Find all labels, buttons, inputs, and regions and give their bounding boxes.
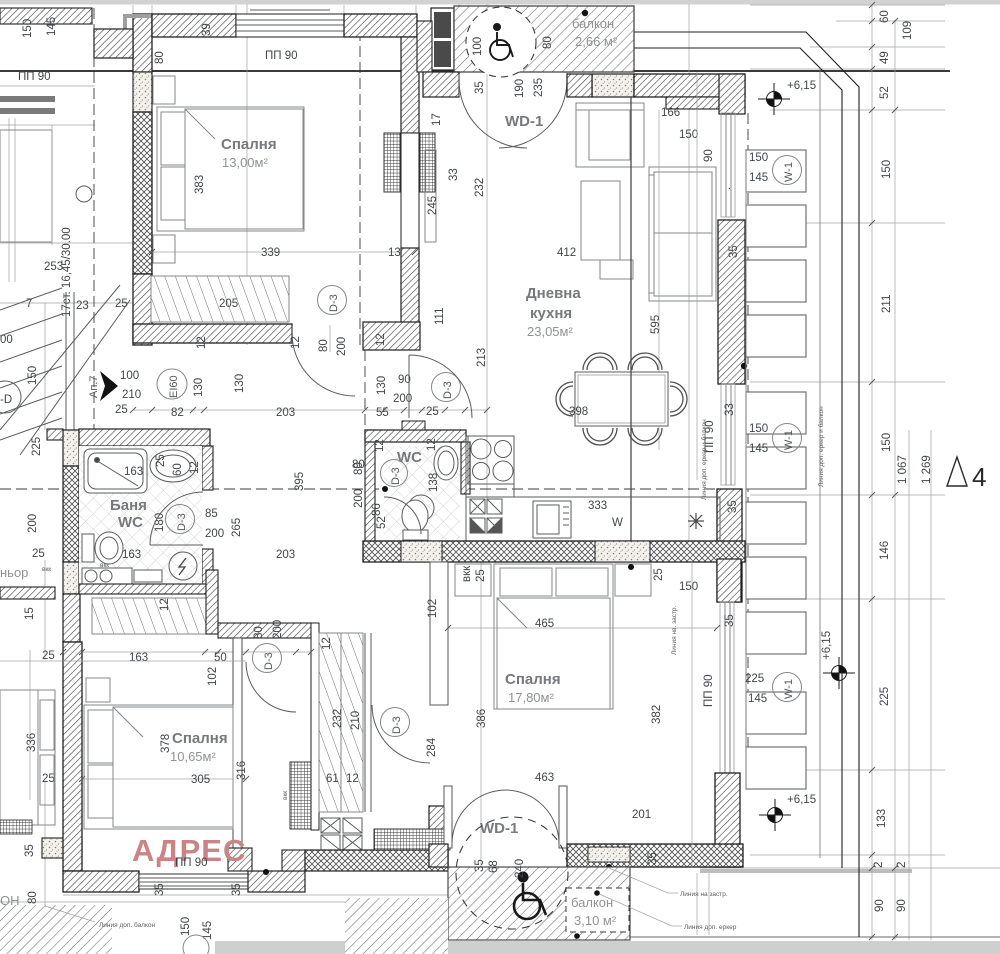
svg-text:200: 200 xyxy=(27,514,39,533)
svg-text:вкк: вкк xyxy=(461,565,473,582)
svg-text:D-3: D-3 xyxy=(390,467,402,485)
svg-text:25: 25 xyxy=(653,568,665,581)
svg-text:133: 133 xyxy=(876,809,888,828)
svg-text:Спалня: Спалня xyxy=(172,730,228,747)
svg-text:265: 265 xyxy=(231,518,243,537)
svg-text:W-1: W-1 xyxy=(783,162,795,182)
svg-text:13: 13 xyxy=(388,247,401,259)
svg-text:4: 4 xyxy=(972,462,986,492)
svg-text:17ст. 16,45/30.00: 17ст. 16,45/30.00 xyxy=(61,227,73,317)
svg-text:12: 12 xyxy=(426,438,438,451)
svg-text:2: 2 xyxy=(873,862,885,868)
svg-text:WD-1: WD-1 xyxy=(480,820,518,837)
svg-text:D-3: D-3 xyxy=(391,716,403,734)
svg-text:12: 12 xyxy=(196,336,208,349)
svg-text:35: 35 xyxy=(728,245,740,258)
svg-text:145: 145 xyxy=(748,693,767,705)
svg-text:Спалня: Спалня xyxy=(505,671,561,688)
svg-text:52: 52 xyxy=(376,516,388,529)
svg-text:150: 150 xyxy=(881,433,893,452)
svg-text:100: 100 xyxy=(120,370,139,382)
svg-text:25: 25 xyxy=(115,298,128,310)
svg-text:200: 200 xyxy=(272,620,284,639)
svg-text:7: 7 xyxy=(26,298,32,310)
svg-text:336: 336 xyxy=(26,733,38,752)
svg-text:200: 200 xyxy=(353,489,365,508)
svg-text:17: 17 xyxy=(431,113,443,126)
svg-text:12: 12 xyxy=(159,598,171,611)
svg-text:12: 12 xyxy=(189,461,201,474)
svg-text:150: 150 xyxy=(679,581,698,593)
svg-text:35: 35 xyxy=(231,883,243,896)
svg-text:WC: WC xyxy=(118,514,143,531)
svg-text:Линия нв. застр.: Линия нв. застр. xyxy=(671,605,678,655)
svg-text:145: 145 xyxy=(46,17,58,36)
svg-text:210: 210 xyxy=(350,711,362,730)
svg-text:00: 00 xyxy=(0,334,13,346)
svg-text:398: 398 xyxy=(569,406,588,418)
svg-text:150: 150 xyxy=(180,917,192,936)
svg-text:49: 49 xyxy=(879,51,891,64)
svg-text:35: 35 xyxy=(724,614,736,627)
svg-text:W-1: W-1 xyxy=(783,679,795,699)
svg-text:130: 130 xyxy=(234,374,246,393)
svg-text:12: 12 xyxy=(346,773,359,785)
svg-text:WC: WC xyxy=(397,449,422,466)
svg-text:35: 35 xyxy=(24,844,36,857)
svg-text:35: 35 xyxy=(474,81,486,94)
svg-text:146: 146 xyxy=(879,541,891,560)
svg-text:205: 205 xyxy=(219,298,238,310)
svg-text:386: 386 xyxy=(476,709,488,728)
svg-text:378: 378 xyxy=(160,734,172,753)
svg-text:102: 102 xyxy=(427,599,439,618)
svg-text:595: 595 xyxy=(650,315,662,334)
svg-text:412: 412 xyxy=(557,247,576,259)
svg-text:25: 25 xyxy=(426,406,439,418)
svg-text:213: 213 xyxy=(476,348,488,367)
svg-text:25: 25 xyxy=(475,569,487,582)
svg-text:25: 25 xyxy=(42,773,55,785)
svg-text:60: 60 xyxy=(172,463,184,476)
svg-text:130: 130 xyxy=(376,376,388,395)
svg-text:150: 150 xyxy=(679,129,698,141)
svg-text:12: 12 xyxy=(290,336,302,349)
svg-text:111: 111 xyxy=(434,308,446,325)
svg-text:12: 12 xyxy=(321,637,333,650)
svg-text:60: 60 xyxy=(879,10,891,23)
svg-text:305: 305 xyxy=(191,774,210,786)
svg-text:145: 145 xyxy=(749,443,768,455)
svg-text:Линия доп. еркер: Линия доп. еркер xyxy=(684,924,737,931)
svg-text:1 269: 1 269 xyxy=(921,455,933,484)
svg-text:150: 150 xyxy=(27,366,39,385)
svg-text:15: 15 xyxy=(24,607,36,620)
svg-text:463: 463 xyxy=(535,772,554,784)
svg-text:35: 35 xyxy=(474,859,486,872)
svg-text:82: 82 xyxy=(171,407,184,419)
svg-text:80: 80 xyxy=(253,626,265,639)
svg-text:25: 25 xyxy=(42,650,55,662)
svg-text:WD-1: WD-1 xyxy=(505,113,543,130)
svg-text:Линия на застр.: Линия на застр. xyxy=(680,891,728,898)
svg-text:23,05м²: 23,05м² xyxy=(527,324,573,339)
svg-text:80: 80 xyxy=(352,459,365,471)
svg-text:85: 85 xyxy=(205,508,218,520)
svg-text:150: 150 xyxy=(22,19,34,38)
svg-text:166: 166 xyxy=(661,107,680,119)
svg-text:163: 163 xyxy=(129,652,148,664)
svg-text:W-1: W-1 xyxy=(783,430,795,450)
svg-text:+6,15: +6,15 xyxy=(787,80,816,92)
svg-text:Баня: Баня xyxy=(110,497,147,514)
svg-text:225: 225 xyxy=(31,437,43,456)
svg-text:90: 90 xyxy=(703,149,715,162)
svg-text:339: 339 xyxy=(261,247,280,259)
svg-text:25: 25 xyxy=(32,548,45,560)
svg-text:203: 203 xyxy=(276,407,295,419)
svg-text:вкк: вкк xyxy=(282,791,289,800)
svg-text:25: 25 xyxy=(115,404,128,416)
svg-text:333: 333 xyxy=(588,500,607,512)
svg-text:383: 383 xyxy=(194,175,206,194)
svg-text:232: 232 xyxy=(332,709,344,728)
svg-text:240: 240 xyxy=(514,859,526,878)
svg-text:80: 80 xyxy=(542,36,554,49)
svg-text:10,65м²: 10,65м² xyxy=(170,749,216,764)
svg-text:163: 163 xyxy=(122,549,141,561)
svg-text:D-3: D-3 xyxy=(176,513,188,531)
svg-text:100: 100 xyxy=(472,37,484,56)
svg-text:61: 61 xyxy=(326,773,339,785)
svg-text:395: 395 xyxy=(294,472,306,491)
svg-text:68: 68 xyxy=(488,860,500,873)
svg-text:90: 90 xyxy=(896,899,908,912)
svg-text:225: 225 xyxy=(879,687,891,706)
svg-text:2,66 м²: 2,66 м² xyxy=(575,34,618,49)
svg-text:33: 33 xyxy=(448,168,460,181)
svg-text:Линия доп. еркер и балкон: Линия доп. еркер и балкон xyxy=(700,419,708,500)
svg-text:D-3: D-3 xyxy=(328,294,340,312)
svg-text:балкон: балкон xyxy=(572,16,614,31)
svg-text:Дневна: Дневна xyxy=(526,285,581,302)
svg-text:55: 55 xyxy=(376,407,389,419)
svg-text:кухня: кухня xyxy=(530,305,572,322)
svg-text:+6,15: +6,15 xyxy=(787,794,816,806)
svg-text:382: 382 xyxy=(651,705,663,724)
svg-text:465: 465 xyxy=(535,618,554,630)
svg-text:Спалня: Спалня xyxy=(221,136,277,153)
svg-text:138: 138 xyxy=(428,473,440,492)
svg-text:23: 23 xyxy=(76,300,89,312)
svg-text:39: 39 xyxy=(201,23,213,36)
svg-text:ньор: ньор xyxy=(0,565,28,580)
svg-text:284: 284 xyxy=(426,737,438,757)
svg-text:Линия доп. балкон: Линия доп. балкон xyxy=(99,921,155,929)
svg-text:80: 80 xyxy=(154,51,166,64)
svg-text:80: 80 xyxy=(318,339,330,352)
svg-text:190: 190 xyxy=(514,79,526,98)
svg-text:33: 33 xyxy=(724,403,736,416)
svg-text:80: 80 xyxy=(27,891,39,904)
svg-text:245: 245 xyxy=(427,196,439,215)
svg-text:163: 163 xyxy=(124,466,143,478)
svg-text:232: 232 xyxy=(474,178,486,197)
svg-text:+6,15: +6,15 xyxy=(821,631,833,660)
svg-text:35: 35 xyxy=(727,500,739,513)
svg-text:150: 150 xyxy=(749,423,768,435)
svg-text:210: 210 xyxy=(122,389,141,401)
svg-text:вкк: вкк xyxy=(42,566,51,573)
svg-text:ПП 90: ПП 90 xyxy=(175,857,208,869)
svg-text:90: 90 xyxy=(874,899,886,912)
svg-text:180: 180 xyxy=(154,513,166,532)
svg-text:D-3: D-3 xyxy=(442,381,454,399)
svg-text:200: 200 xyxy=(205,528,224,540)
svg-text:ПП 90: ПП 90 xyxy=(18,71,51,83)
svg-text:150: 150 xyxy=(881,160,893,179)
svg-text:3,10 м²: 3,10 м² xyxy=(574,913,617,928)
svg-text:вкк: вкк xyxy=(100,562,109,569)
svg-text:25: 25 xyxy=(155,454,167,467)
svg-text:.: . xyxy=(721,187,733,190)
svg-text:211: 211 xyxy=(881,295,893,313)
svg-text:ПП 90: ПП 90 xyxy=(265,50,298,62)
svg-text:200: 200 xyxy=(336,337,348,356)
svg-text:235: 235 xyxy=(533,78,545,97)
svg-text:D-3: D-3 xyxy=(263,652,275,670)
svg-text:130: 130 xyxy=(193,378,205,397)
svg-text:145: 145 xyxy=(749,172,768,184)
svg-text:-D: -D xyxy=(0,394,12,406)
svg-text:35: 35 xyxy=(647,852,659,865)
svg-text:201: 201 xyxy=(632,809,651,821)
svg-text:225: 225 xyxy=(745,673,764,685)
svg-text:13,00м²: 13,00м² xyxy=(222,155,268,170)
svg-text:12: 12 xyxy=(375,333,387,346)
svg-text:W: W xyxy=(612,517,623,529)
svg-text:Ап.7: Ап.7 xyxy=(88,376,100,398)
svg-text:203: 203 xyxy=(276,549,295,561)
svg-text:12: 12 xyxy=(374,439,386,452)
svg-text:316: 316 xyxy=(236,761,248,780)
svg-text:EI60: EI60 xyxy=(168,375,180,398)
svg-text:ПП 90: ПП 90 xyxy=(703,674,715,707)
svg-text:86: 86 xyxy=(371,503,383,516)
svg-text:52: 52 xyxy=(879,86,891,99)
svg-text:2: 2 xyxy=(896,862,908,868)
svg-text:17,80м²: 17,80м² xyxy=(508,690,554,705)
svg-text:102: 102 xyxy=(207,667,219,686)
svg-text:35: 35 xyxy=(154,883,166,896)
svg-text:109: 109 xyxy=(902,21,914,40)
svg-text:Линия доп. еркер и балкон: Линия доп. еркер и балкон xyxy=(817,406,825,487)
svg-text:1 067: 1 067 xyxy=(897,455,909,484)
svg-text:150: 150 xyxy=(749,152,768,164)
